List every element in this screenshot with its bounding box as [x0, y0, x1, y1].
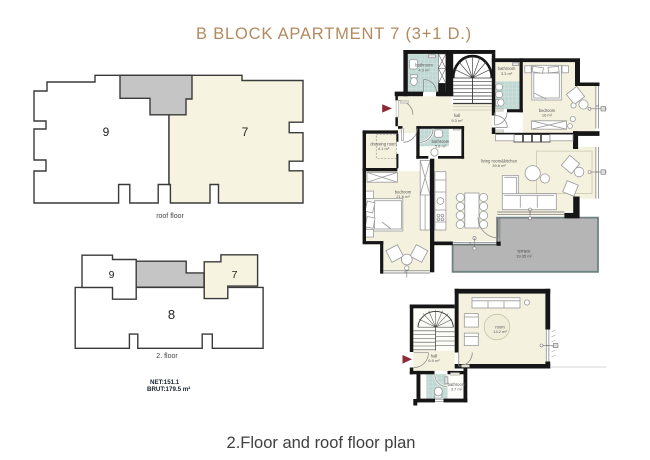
svg-text:2.Floor and roof floor plan: 2.Floor and roof floor plan [227, 434, 416, 452]
svg-text:5.6 m²: 5.6 m² [435, 144, 447, 149]
svg-text:14.2 m²: 14.2 m² [493, 329, 507, 334]
svg-text:4.1 m²: 4.1 m² [378, 146, 390, 151]
svg-text:7: 7 [242, 125, 249, 139]
svg-text:roof floor: roof floor [156, 213, 184, 220]
svg-text:8: 8 [168, 307, 175, 322]
svg-text:NET:151.1: NET:151.1 [150, 379, 180, 386]
svg-text:4.3 m²: 4.3 m² [418, 68, 430, 73]
svg-text:B BLOCK APARTMENT 7 (3+1 D.): B BLOCK APARTMENT 7 (3+1 D.) [196, 25, 472, 43]
svg-text:3.3 m²: 3.3 m² [501, 71, 513, 76]
svg-text:21.6 m²: 21.6 m² [396, 194, 410, 199]
svg-text:9: 9 [103, 125, 110, 139]
svg-text:16 m²: 16 m² [542, 113, 553, 118]
svg-text:9: 9 [109, 269, 115, 281]
svg-text:7: 7 [232, 269, 238, 281]
svg-text:6.9 m²: 6.9 m² [428, 358, 440, 363]
svg-text:2. floor: 2. floor [156, 353, 178, 360]
svg-text:19.35 m²: 19.35 m² [516, 254, 532, 259]
svg-text:BRUT:179.5 m²: BRUT:179.5 m² [147, 386, 190, 393]
svg-text:3.7 m²: 3.7 m² [451, 387, 463, 392]
svg-text:39.6 m²: 39.6 m² [492, 163, 506, 168]
svg-text:9.3 m²: 9.3 m² [451, 118, 463, 123]
